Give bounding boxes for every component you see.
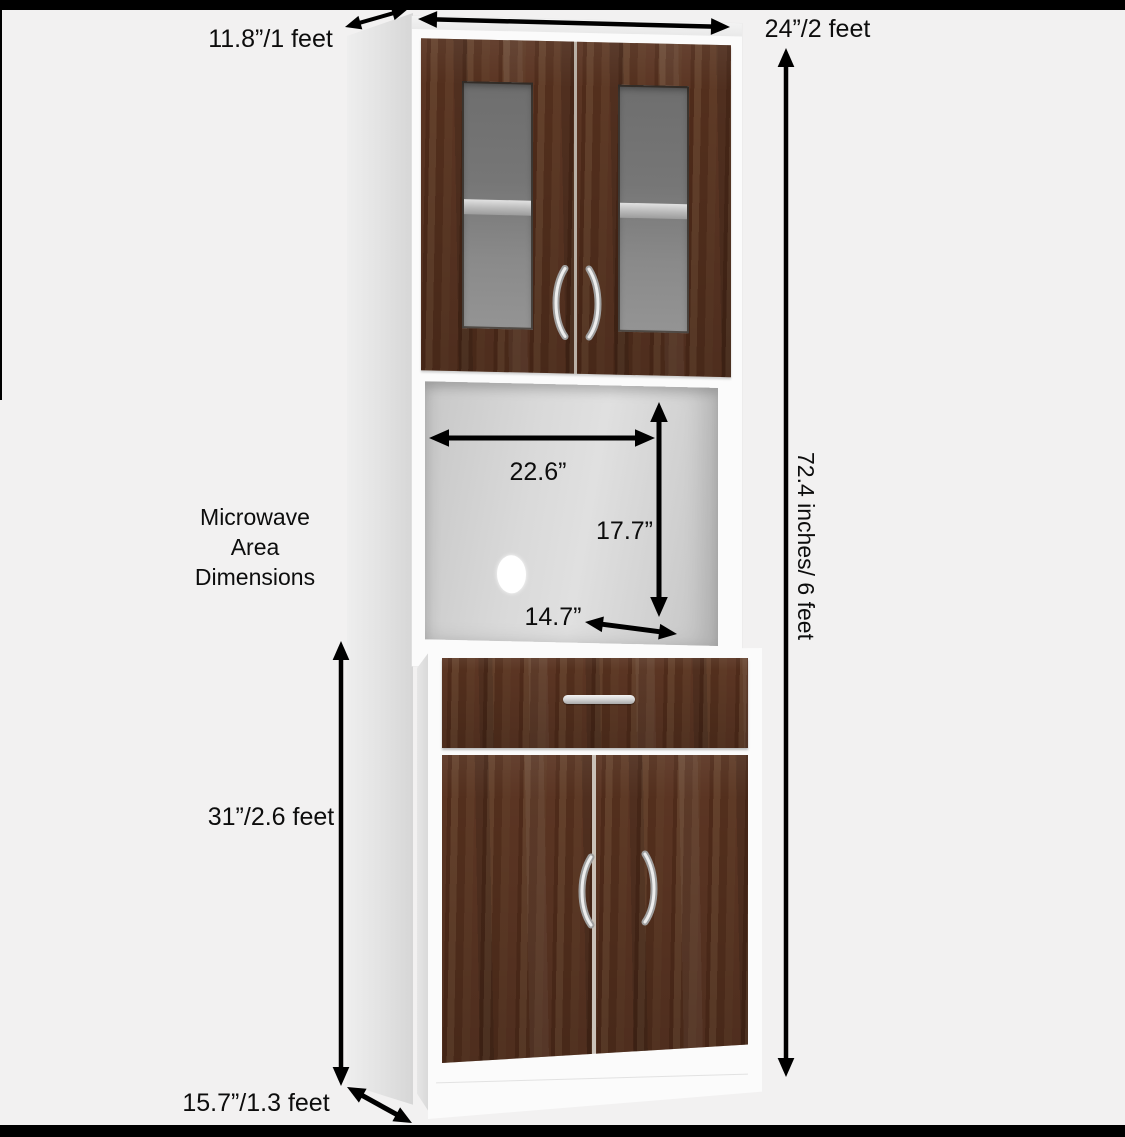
label-base-depth: 15.7”/1.3 feet: [180, 1089, 332, 1117]
label-microwave-height: 17.7”: [583, 517, 653, 545]
plinth-line: [436, 1074, 748, 1084]
diagram-canvas: 11.8”/1 feet 24”/2 feet 72.4 inches/ 6 f…: [0, 0, 1125, 1137]
label-microwave-width: 22.6”: [497, 458, 579, 486]
base-left-door: [442, 755, 592, 1063]
label-total-height: 72.4 inches/ 6 feet: [792, 452, 819, 652]
arrow-microwave-height: [645, 388, 673, 631]
upper-left-door-handle-icon: [549, 263, 571, 341]
base-right-door-handle-icon: [639, 849, 661, 927]
title-line-1: Microwave: [155, 502, 355, 532]
arrow-top-width: [404, 5, 744, 41]
cabinet-left-side-panel: [347, 13, 413, 1107]
upper-right-door-handle-icon: [583, 264, 605, 342]
drawer-handle-icon: [563, 695, 635, 704]
label-microwave-depth: 14.7”: [518, 603, 588, 631]
cabinet-base-unit: [428, 648, 762, 1119]
interior-shelf: [620, 203, 687, 220]
upper-glass-doors: [421, 38, 731, 377]
bottom-black-bar: [0, 1125, 1125, 1137]
upper-right-door-glass: [618, 85, 689, 334]
left-edge-artifact: [0, 10, 2, 400]
interior-shelf: [464, 199, 531, 216]
base-left-door-handle-icon: [575, 852, 597, 930]
base-left-side-face: [417, 652, 429, 1112]
base-right-door: [596, 755, 748, 1063]
label-top-width: 24”/2 feet: [760, 15, 875, 43]
microwave-area-title: Microwave Area Dimensions: [155, 502, 355, 592]
cabinet-upper-hutch: [412, 16, 742, 673]
label-top-depth: 11.8”/1 feet: [203, 25, 338, 53]
cable-hole: [497, 555, 526, 594]
arrow-lower-height: [327, 627, 355, 1100]
arrow-base-depth: [333, 1073, 426, 1137]
base-doors: [442, 755, 748, 1063]
arrow-microwave-depth: [571, 608, 691, 648]
label-lower-height: 31”/2.6 feet: [205, 803, 337, 831]
arrow-microwave-width: [415, 424, 669, 452]
title-line-3: Dimensions: [155, 562, 355, 592]
title-line-2: Area: [155, 532, 355, 562]
upper-left-door-glass: [462, 81, 533, 330]
